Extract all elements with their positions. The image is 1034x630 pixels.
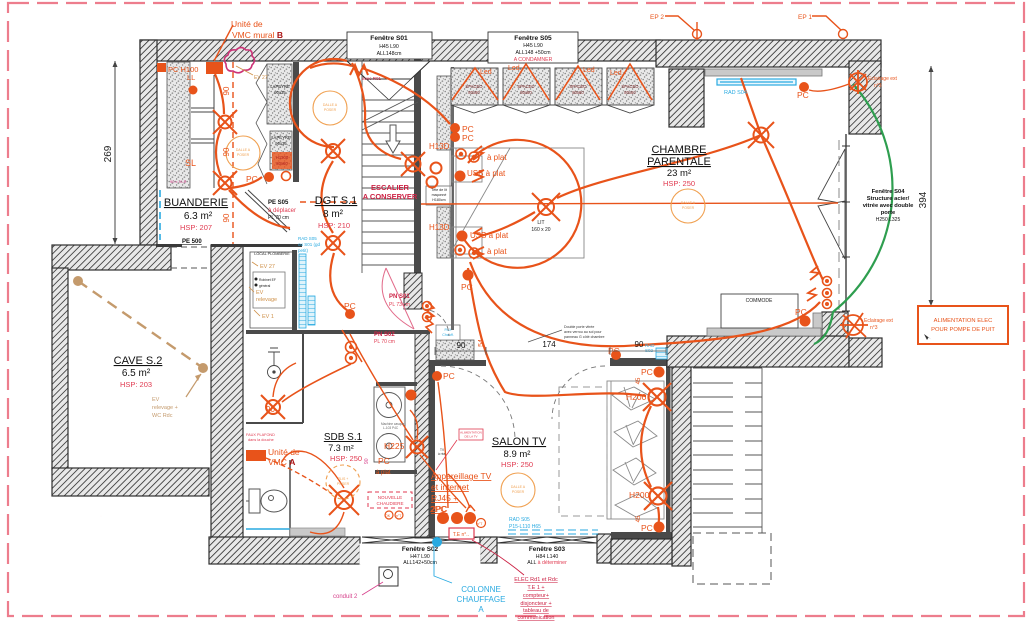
svg-text:CHAUDIERE: CHAUDIERE <box>376 501 403 506</box>
svg-text:Unité de: Unité de <box>268 447 300 457</box>
svg-text:conduit 2: conduit 2 <box>333 594 358 600</box>
svg-text:80x60: 80x60 <box>624 90 636 95</box>
svg-text:ALIMENTATION ELEC: ALIMENTATION ELEC <box>934 318 993 324</box>
svg-text:HSP: 250: HSP: 250 <box>330 454 362 463</box>
svg-text:CAVE S.2: CAVE S.2 <box>114 355 163 367</box>
svg-text:RAD S04: RAD S04 <box>724 90 747 96</box>
svg-text:6.5 m²: 6.5 m² <box>122 368 151 379</box>
svg-text:90: 90 <box>222 86 231 95</box>
svg-text:ALL148 +50cm: ALL148 +50cm <box>515 50 550 56</box>
svg-text:ALL148cm: ALL148cm <box>377 51 402 57</box>
svg-text:HSP: 207: HSP: 207 <box>180 223 212 232</box>
svg-text:USB à plat: USB à plat <box>470 231 509 240</box>
svg-text:ALL142+50cm: ALL142+50cm <box>403 560 437 566</box>
svg-text:ELEC Rd1 et Rdc: ELEC Rd1 et Rdc <box>514 577 558 583</box>
svg-text:Fenêtre S04: Fenêtre S04 <box>872 189 906 195</box>
svg-text:PC: PC <box>246 174 258 184</box>
svg-text:H1300: H1300 <box>276 155 289 160</box>
svg-text:H250 L325: H250 L325 <box>876 217 901 223</box>
svg-text:SPACEO: SPACEO <box>517 84 535 89</box>
svg-text:90: 90 <box>457 341 466 350</box>
svg-text:L-103 P4C: L-103 P4C <box>383 426 399 430</box>
svg-text:DE LA TV: DE LA TV <box>464 435 477 439</box>
svg-text:H45 L90: H45 L90 <box>379 44 399 50</box>
svg-text:DALLE A: DALLE A <box>511 485 526 489</box>
svg-text:90: 90 <box>266 405 275 414</box>
svg-text:8 m²: 8 m² <box>323 209 344 220</box>
svg-text:EP 1: EP 1 <box>798 14 812 21</box>
svg-text:Structure acier/: Structure acier/ <box>867 196 910 202</box>
svg-text:LAPEYRE: LAPEYRE <box>270 84 290 89</box>
svg-text:tableau de: tableau de <box>523 608 549 614</box>
svg-text:A: A <box>478 605 484 614</box>
svg-text:6.3 m²: 6.3 m² <box>184 211 213 222</box>
svg-text:LIT: LIT <box>537 220 544 226</box>
svg-text:394: 394 <box>918 191 929 208</box>
svg-text:Fenêtre S01: Fenêtre S01 <box>370 35 408 42</box>
svg-text:à plat: à plat <box>487 247 507 256</box>
svg-text:H13D: H13D <box>429 223 450 232</box>
svg-text:ESCALIER: ESCALIER <box>371 183 410 192</box>
svg-text:CHAUFFAGE: CHAUFFAGE <box>457 595 506 604</box>
svg-text:EV: EV <box>152 397 160 403</box>
svg-text:Fenêtre S02: Fenêtre S02 <box>402 546 439 553</box>
svg-text:A CONSERVER: A CONSERVER <box>363 192 418 201</box>
svg-text:n°7: n°7 <box>477 522 482 526</box>
svg-text:LL: LL <box>187 73 195 82</box>
svg-text:PARENTALE: PARENTALE <box>647 156 711 168</box>
svg-text:LOCAL PLOMBERIE: LOCAL PLOMBERIE <box>254 252 290 256</box>
svg-text:porte: porte <box>881 210 896 216</box>
svg-text:PL 70 cm: PL 70 cm <box>268 215 289 221</box>
svg-text:EV: EV <box>256 290 264 296</box>
svg-text:EV 27: EV 27 <box>254 75 268 81</box>
svg-text:80x60: 80x60 <box>468 90 480 95</box>
svg-text:90x35: 90x35 <box>274 90 286 95</box>
svg-text:vitrée avec double: vitrée avec double <box>863 203 914 209</box>
svg-text:VMC mural B: VMC mural B <box>232 30 283 40</box>
svg-text:OK: OK <box>385 514 391 518</box>
svg-text:SPACEO: SPACEO <box>465 84 483 89</box>
svg-text:S02: S02 <box>645 348 654 353</box>
svg-text:avec R01: avec R01 <box>362 76 382 81</box>
svg-text:et internet: et internet <box>431 482 469 492</box>
svg-text:EV 1: EV 1 <box>262 314 274 320</box>
svg-text:PC: PC <box>641 367 653 377</box>
svg-text:DGT S.1: DGT S.1 <box>315 195 358 207</box>
svg-text:USB à plat: USB à plat <box>467 169 506 178</box>
svg-text:CHAMBRE: CHAMBRE <box>651 144 706 156</box>
svg-text:45: 45 <box>636 377 642 384</box>
svg-text:PC: PC <box>797 90 809 100</box>
svg-text:PC: PC <box>378 456 390 466</box>
svg-text:Chauff.: Chauff. <box>442 333 454 337</box>
svg-text:Fenêtre S05: Fenêtre S05 <box>514 35 552 42</box>
svg-text:POSER: POSER <box>512 490 525 494</box>
svg-text:PC: PC <box>461 282 473 292</box>
svg-text:RAD S05: RAD S05 <box>509 517 530 523</box>
svg-text:POSER: POSER <box>237 153 250 157</box>
svg-text:n°3: n°3 <box>874 83 882 89</box>
svg-text:avec verrou au sol pour: avec verrou au sol pour <box>564 330 602 334</box>
svg-text:T.E n°..: T.E n°.. <box>453 532 469 538</box>
svg-text:T.E 1 +: T.E 1 + <box>527 585 544 591</box>
svg-text:DALLE A: DALLE A <box>236 148 251 152</box>
svg-text:COMMODE: COMMODE <box>746 298 773 304</box>
svg-text:80x60: 80x60 <box>276 161 288 166</box>
svg-text:80x60: 80x60 <box>520 90 532 95</box>
svg-text:90: 90 <box>222 213 231 222</box>
svg-text:disjoncteur +: disjoncteur + <box>520 601 551 607</box>
svg-text:8.9 m²: 8.9 m² <box>504 449 531 460</box>
svg-text:A CONDAMNER: A CONDAMNER <box>514 57 553 63</box>
svg-text:H180cm: H180cm <box>432 198 445 202</box>
svg-text:HSP: 203: HSP: 203 <box>120 380 152 389</box>
svg-text:COLONNE: COLONNE <box>461 585 501 594</box>
svg-text:P15-L110 H65: P15-L110 H65 <box>509 524 541 530</box>
svg-text:BUANDERIE: BUANDERIE <box>164 197 228 209</box>
svg-text:SPACEO: SPACEO <box>569 84 587 89</box>
svg-text:7.3 m²: 7.3 m² <box>328 443 354 453</box>
svg-text:DALLE A: DALLE A <box>681 201 696 205</box>
svg-text:PLIS +: PLIS + <box>338 477 349 481</box>
svg-text:80x60: 80x60 <box>572 90 584 95</box>
svg-text:PC: PC <box>344 301 356 311</box>
svg-text:relevage: relevage <box>256 297 277 303</box>
svg-text:90: 90 <box>364 458 370 464</box>
svg-text:PC: PC <box>443 371 455 381</box>
svg-text:RJ45 +: RJ45 + <box>431 493 458 503</box>
svg-text:Led: Led <box>583 67 595 74</box>
svg-text:HSP: 250: HSP: 250 <box>501 460 533 469</box>
svg-text:à plat: à plat <box>376 470 391 476</box>
svg-text:ALL à déterminer: ALL à déterminer <box>527 560 567 566</box>
svg-text:Unité de: Unité de <box>231 19 263 29</box>
svg-text:90 x VLR: 90 x VLR <box>170 179 187 184</box>
svg-text:maçonné: maçonné <box>432 193 447 197</box>
svg-text:Led: Led <box>508 65 520 72</box>
svg-text:EP 2: EP 2 <box>650 14 664 21</box>
svg-text:LAPEYRE: LAPEYRE <box>271 135 291 140</box>
svg-text:H45 L90: H45 L90 <box>523 43 543 49</box>
svg-text:PL 73 cm: PL 73 cm <box>389 302 410 308</box>
svg-text:compteur+: compteur+ <box>523 593 549 599</box>
svg-text:relevage +: relevage + <box>152 405 178 411</box>
svg-text:DALLE A: DALLE A <box>323 103 338 107</box>
svg-text:à déplacer: à déplacer <box>268 208 296 214</box>
svg-text:POSER: POSER <box>337 482 350 486</box>
svg-text:H200: H200 <box>626 392 647 402</box>
svg-text:POSER: POSER <box>324 108 337 112</box>
svg-text:PL 70 cm: PL 70 cm <box>374 339 395 345</box>
svg-text:2PC: 2PC <box>431 504 448 514</box>
svg-text:H200: H200 <box>629 490 650 500</box>
svg-text:90x35: 90x35 <box>275 141 287 146</box>
svg-text:POUR POMPE DE PUIT: POUR POMPE DE PUIT <box>931 327 995 333</box>
svg-text:SL: SL <box>185 158 196 168</box>
svg-text:Appareillage TV: Appareillage TV <box>431 471 492 481</box>
svg-text:269: 269 <box>103 145 114 162</box>
svg-text:EV 27: EV 27 <box>260 264 275 270</box>
svg-text:23 m²: 23 m² <box>667 168 691 179</box>
svg-text:Tête de lit: Tête de lit <box>431 188 447 192</box>
svg-text:Led: Led <box>480 69 492 76</box>
svg-text:Eclairage ext: Eclairage ext <box>864 318 894 324</box>
svg-text:HSP: 250: HSP: 250 <box>663 179 695 188</box>
svg-text:PC: PC <box>641 523 653 533</box>
svg-text:Eclairage ext: Eclairage ext <box>868 76 898 82</box>
svg-text:n°7: n°7 <box>396 514 401 518</box>
svg-text:SDB S.1: SDB S.1 <box>324 432 363 443</box>
svg-text:PE 500: PE 500 <box>182 239 202 245</box>
svg-text:Double porte vitrée: Double porte vitrée <box>564 325 594 329</box>
svg-text:n°3: n°3 <box>870 325 878 331</box>
svg-text:ou S01 (gd: ou S01 (gd <box>298 242 321 247</box>
svg-text:petit): petit) <box>298 248 309 253</box>
svg-text:PE S05: PE S05 <box>268 200 289 206</box>
svg-text:PC: PC <box>462 133 474 143</box>
svg-text:90: 90 <box>222 147 231 156</box>
svg-text:Robinet EF: Robinet EF <box>259 278 276 282</box>
svg-text:HSP: 210: HSP: 210 <box>318 221 350 230</box>
svg-text:FAUX PLAFOND: FAUX PLAFOND <box>246 433 275 437</box>
svg-text:POSER: POSER <box>682 206 695 210</box>
svg-text:à réa: à réa <box>438 452 445 456</box>
svg-text:PC: PC <box>795 307 807 317</box>
svg-text:NOUVELLE: NOUVELLE <box>378 495 403 500</box>
svg-text:WC Rdc: WC Rdc <box>152 413 173 419</box>
svg-text:PN S02: PN S02 <box>374 332 395 338</box>
svg-text:54: 54 <box>478 339 485 347</box>
svg-text:SALON TV: SALON TV <box>492 436 547 448</box>
svg-text:VMC A: VMC A <box>268 457 295 467</box>
svg-text:Led: Led <box>610 70 622 77</box>
svg-text:160 x 20: 160 x 20 <box>531 227 550 233</box>
svg-text:PN S01: PN S01 <box>389 294 410 300</box>
svg-text:SPACEO: SPACEO <box>621 84 639 89</box>
svg-text:174: 174 <box>542 340 556 349</box>
svg-text:à plat: à plat <box>487 153 507 162</box>
svg-text:90: 90 <box>635 340 644 349</box>
svg-text:général: général <box>259 284 271 288</box>
svg-text:Fenêtre S03: Fenêtre S03 <box>529 546 566 553</box>
svg-text:45: 45 <box>636 515 642 522</box>
svg-text:communication: communication <box>518 615 555 621</box>
svg-text:RAD S05: RAD S05 <box>298 236 317 241</box>
svg-text:H13D: H13D <box>429 142 450 151</box>
svg-text:dans la douche: dans la douche <box>248 438 274 442</box>
svg-text:H225: H225 <box>384 441 405 451</box>
svg-text:panneau G côté chambre: panneau G côté chambre <box>564 335 605 339</box>
